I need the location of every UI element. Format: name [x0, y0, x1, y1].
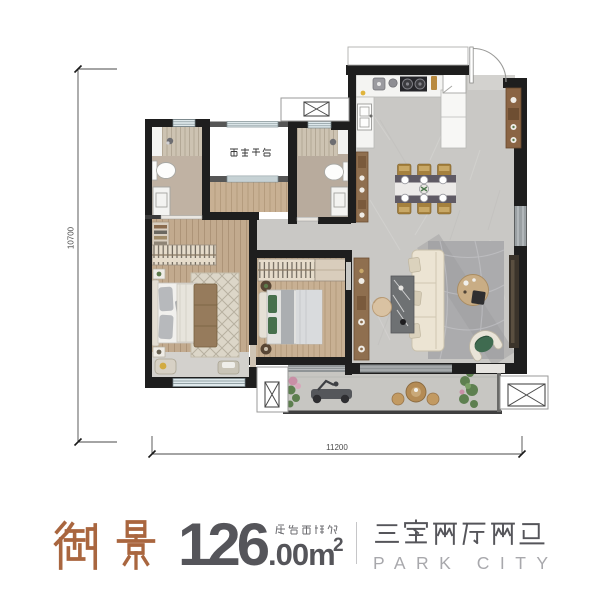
svg-text:.00m: .00m: [268, 537, 335, 572]
svg-text:11200: 11200: [326, 443, 348, 452]
svg-text:2: 2: [333, 535, 344, 556]
svg-text:PARK CITY: PARK CITY: [373, 553, 559, 573]
svg-text:10700: 10700: [67, 226, 76, 249]
svg-text:126: 126: [178, 511, 269, 578]
